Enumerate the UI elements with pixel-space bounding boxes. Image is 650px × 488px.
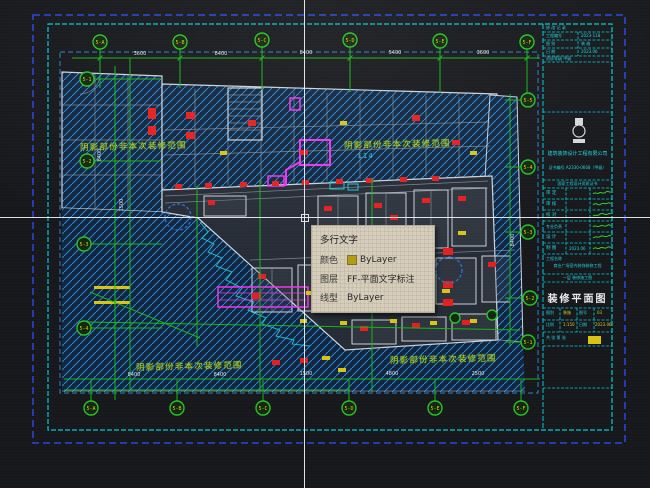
tooltip-color-label: 颜色 [320, 253, 347, 266]
axis-bubble: 5-1 [521, 335, 535, 349]
axis-bubble: 5-3 [77, 237, 91, 251]
tb-label[interactable]: 资质等级 甲级 [546, 57, 571, 61]
svg-text:3600: 3600 [477, 50, 490, 56]
crosshair-vertical [304, 0, 305, 488]
axis-bubble: 5-4 [521, 160, 535, 174]
svg-text:2500: 2500 [472, 371, 485, 377]
tb-value[interactable]: 2023.06 [581, 50, 598, 54]
cursor-pickbox [301, 214, 309, 222]
tb-sign-label[interactable]: 审 核 [546, 203, 556, 208]
tb-grid-value[interactable]: 03 [597, 311, 602, 315]
tb-certificate[interactable]: 证书编号 A2330-0668（甲级） [543, 166, 612, 170]
svg-text:5-2: 5-2 [525, 296, 534, 302]
svg-text:8400: 8400 [215, 51, 228, 57]
cad-screen: 3600 8400 8400 5400 3600 8400 8400 1500 … [0, 0, 650, 488]
shaded-area-note[interactable]: 阴影部份非本次装修范围 [390, 352, 497, 366]
svg-text:5-B: 5-B [175, 40, 184, 46]
tb-grid-value[interactable]: 2023.06 [595, 323, 612, 327]
axis-bubble: 5-2 [523, 291, 537, 305]
tb-revision-header[interactable]: 修 改 记 录 [546, 26, 566, 30]
tb-grid-label[interactable]: 比例 [546, 323, 554, 327]
axis-bubble: 5-F [520, 35, 534, 49]
axis-bubble: 5-D [343, 33, 357, 47]
tooltip-layer-label: 图层 [320, 272, 347, 285]
svg-text:5-A: 5-A [86, 406, 95, 412]
tb-certificate-small[interactable]: 国家工程设计资质证书 [543, 182, 612, 186]
axis-bubble: 5-A [93, 35, 107, 49]
shaded-area-note[interactable]: 阴影部份非本次装修范围 [136, 359, 243, 373]
axis-bubble: 5-B [170, 401, 184, 415]
axis-bubble: 5-E [428, 401, 442, 415]
tb-label[interactable]: 工程编号 [546, 34, 562, 38]
svg-text:3600: 3600 [134, 51, 147, 57]
tooltip-linetype-value: ByLayer [347, 293, 384, 303]
axis-bubble: 5-C [255, 33, 269, 47]
svg-text:5-F: 5-F [516, 406, 525, 412]
svg-text:8400: 8400 [510, 234, 516, 247]
svg-text:5-1: 5-1 [523, 340, 532, 346]
interior-bubble [487, 310, 497, 320]
svg-text:5-5: 5-5 [523, 98, 532, 104]
svg-text:5400: 5400 [389, 50, 402, 56]
svg-text:5-3: 5-3 [79, 242, 88, 248]
axis-bubble: 5-5 [521, 93, 535, 107]
floor-plan[interactable] [62, 58, 525, 400]
tb-label[interactable]: 图 别 [546, 42, 555, 46]
tb-company-name[interactable]: 建筑装饰设计工程有限公司 [543, 152, 612, 157]
svg-text:5-E: 5-E [430, 406, 439, 412]
shaded-area-note[interactable]: 阴影部份非本次装修范围 [80, 139, 187, 153]
shaded-area-note[interactable]: 阴影部份非本次装修范围 [344, 137, 451, 151]
svg-text:5-4: 5-4 [523, 165, 532, 171]
tooltip-color-value: ByLayer [360, 255, 397, 265]
tb-sign-label[interactable]: 设 计 [546, 236, 556, 241]
tb-value[interactable]: 2023-118 [581, 34, 600, 38]
axis-bubble: 5-A [84, 401, 98, 415]
rollover-tooltip: 多行文字 颜色 ByLayer 图层 FF-平面文字标注 线型 ByLayer [311, 225, 435, 313]
axis-bubble: 5-3 [521, 225, 535, 239]
tb-grid-value[interactable]: 1:150 [563, 323, 575, 327]
axis-bubble: 5-B [173, 35, 187, 49]
svg-text:8400: 8400 [300, 50, 313, 56]
svg-text:8400: 8400 [214, 372, 227, 378]
tb-sign-label[interactable]: 制 图 [546, 247, 556, 252]
svg-text:5-C: 5-C [258, 406, 267, 412]
axis-bubble: 5-E [433, 34, 447, 48]
tb-sign-date[interactable]: 2023.06 [569, 247, 586, 251]
tb-grid-label[interactable]: 日期 [579, 323, 587, 327]
svg-text:4800: 4800 [386, 371, 399, 377]
svg-text:5-E: 5-E [435, 39, 444, 45]
title-block: 修 改 记 录 工程编号 2023-118 图 别 装 施 日 期 2023.0… [543, 24, 612, 430]
tooltip-linetype-label: 线型 [320, 291, 347, 304]
tb-drawing-title[interactable]: 装修平面图 [543, 290, 612, 305]
svg-text:5-2: 5-2 [82, 159, 91, 165]
grid-ref-label[interactable]: L14 [358, 152, 374, 160]
svg-text:5-F: 5-F [522, 40, 531, 46]
axis-bubble: 5-F [514, 401, 528, 415]
tb-grid-value[interactable]: 装施 [563, 311, 571, 315]
svg-text:5-B: 5-B [172, 406, 181, 412]
axis-bubble: 5-1 [80, 72, 94, 86]
tb-label[interactable]: 日 期 [546, 50, 555, 54]
axis-bubble: 5-4 [77, 321, 91, 335]
svg-text:5-1: 5-1 [82, 77, 91, 83]
tb-grid-label[interactable]: 图别 [546, 311, 554, 315]
axis-bubble: 5-D [342, 401, 356, 415]
svg-text:5-3: 5-3 [523, 230, 532, 236]
svg-text:5-D: 5-D [344, 406, 353, 412]
tb-sign-label[interactable]: 专业负责 [546, 225, 562, 229]
svg-text:1500: 1500 [300, 371, 313, 377]
axis-bubble: 5-2 [80, 154, 94, 168]
svg-text:5-C: 5-C [257, 38, 266, 44]
axis-bubble: 5-C [256, 401, 270, 415]
svg-text:5-A: 5-A [95, 40, 104, 46]
tb-subproject[interactable]: 一层 装修施工图 [543, 276, 612, 280]
interior-bubble [450, 313, 460, 323]
svg-text:5-D: 5-D [345, 38, 354, 44]
tb-grid-label[interactable]: 图号 [579, 311, 587, 315]
tb-pages[interactable]: 共 张 第 张 [546, 336, 566, 340]
svg-text:1500: 1500 [119, 199, 125, 212]
tb-sign-label[interactable]: 审 定 [546, 192, 556, 197]
tb-value[interactable]: 装 施 [581, 42, 590, 46]
crosshair-horizontal [0, 217, 650, 218]
color-swatch-icon [347, 255, 357, 265]
tb-project-label[interactable]: 工程名称 [546, 257, 562, 261]
tb-project-name[interactable]: 商业广场室内装饰装修工程 [543, 264, 612, 268]
tooltip-layer-value: FF-平面文字标注 [347, 272, 415, 285]
svg-text:5-4: 5-4 [79, 326, 88, 332]
tooltip-entity-type: 多行文字 [320, 232, 426, 246]
